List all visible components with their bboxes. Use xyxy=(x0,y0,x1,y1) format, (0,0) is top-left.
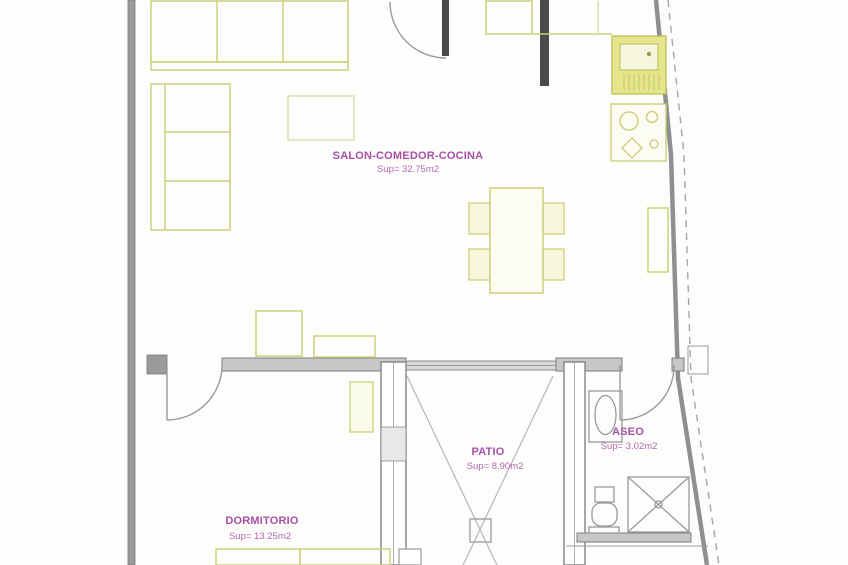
living-room-furniture xyxy=(151,1,564,357)
side-table xyxy=(314,336,375,357)
kitchen-sink xyxy=(612,36,666,94)
bed xyxy=(216,549,390,565)
dining-chair xyxy=(469,203,490,234)
dormitorio-label: DORMITORIO xyxy=(225,515,299,527)
bedroom-door xyxy=(167,365,222,420)
kitchen-stove xyxy=(611,104,666,161)
aseo-area: Sup= 3.02m2 xyxy=(601,441,658,452)
toilet xyxy=(589,487,619,533)
entry-door-arc xyxy=(390,2,446,58)
entry-door-jamb xyxy=(442,0,449,56)
wardrobe xyxy=(350,382,373,432)
shower-tray xyxy=(628,477,689,532)
radiator xyxy=(648,208,668,272)
left-exterior-wall xyxy=(128,0,135,565)
dining-table xyxy=(490,188,543,293)
faucet-icon xyxy=(647,52,651,56)
bedroom-top-wall xyxy=(222,358,406,371)
kitchen-wall-segment xyxy=(540,0,549,86)
dining-chair xyxy=(469,249,490,280)
patio-bottom-door-frame xyxy=(399,549,421,565)
sofa-top xyxy=(151,1,348,70)
sofa-left xyxy=(151,84,230,230)
bathroom-fixtures xyxy=(589,391,689,533)
dining-chair xyxy=(543,203,564,234)
room-labels: SALON-COMEDOR-COCINA Sup= 32.75m2 DORMIT… xyxy=(225,150,657,542)
bedroom-door-pillar xyxy=(147,355,167,374)
bathroom-bottom-wall xyxy=(577,533,691,542)
salon-label: SALON-COMEDOR-COCINA xyxy=(333,150,484,162)
floor-plan: SALON-COMEDOR-COCINA Sup= 32.75m2 DORMIT… xyxy=(0,0,848,565)
dining-set xyxy=(469,188,564,293)
bedroom-patio-wall xyxy=(381,362,406,565)
aseo-label: ASEO xyxy=(612,426,644,438)
dining-chair xyxy=(543,249,564,280)
patio-window xyxy=(406,361,556,370)
bathroom-door xyxy=(620,365,674,420)
salon-area: Sup= 32.75m2 xyxy=(377,164,439,175)
dormitorio-area: Sup= 13.25m2 xyxy=(229,531,291,542)
patio-area: Sup= 8.90m2 xyxy=(467,461,524,472)
living-rug xyxy=(288,96,354,140)
coffee-table xyxy=(256,311,302,356)
patio-label: PATIO xyxy=(472,446,505,458)
